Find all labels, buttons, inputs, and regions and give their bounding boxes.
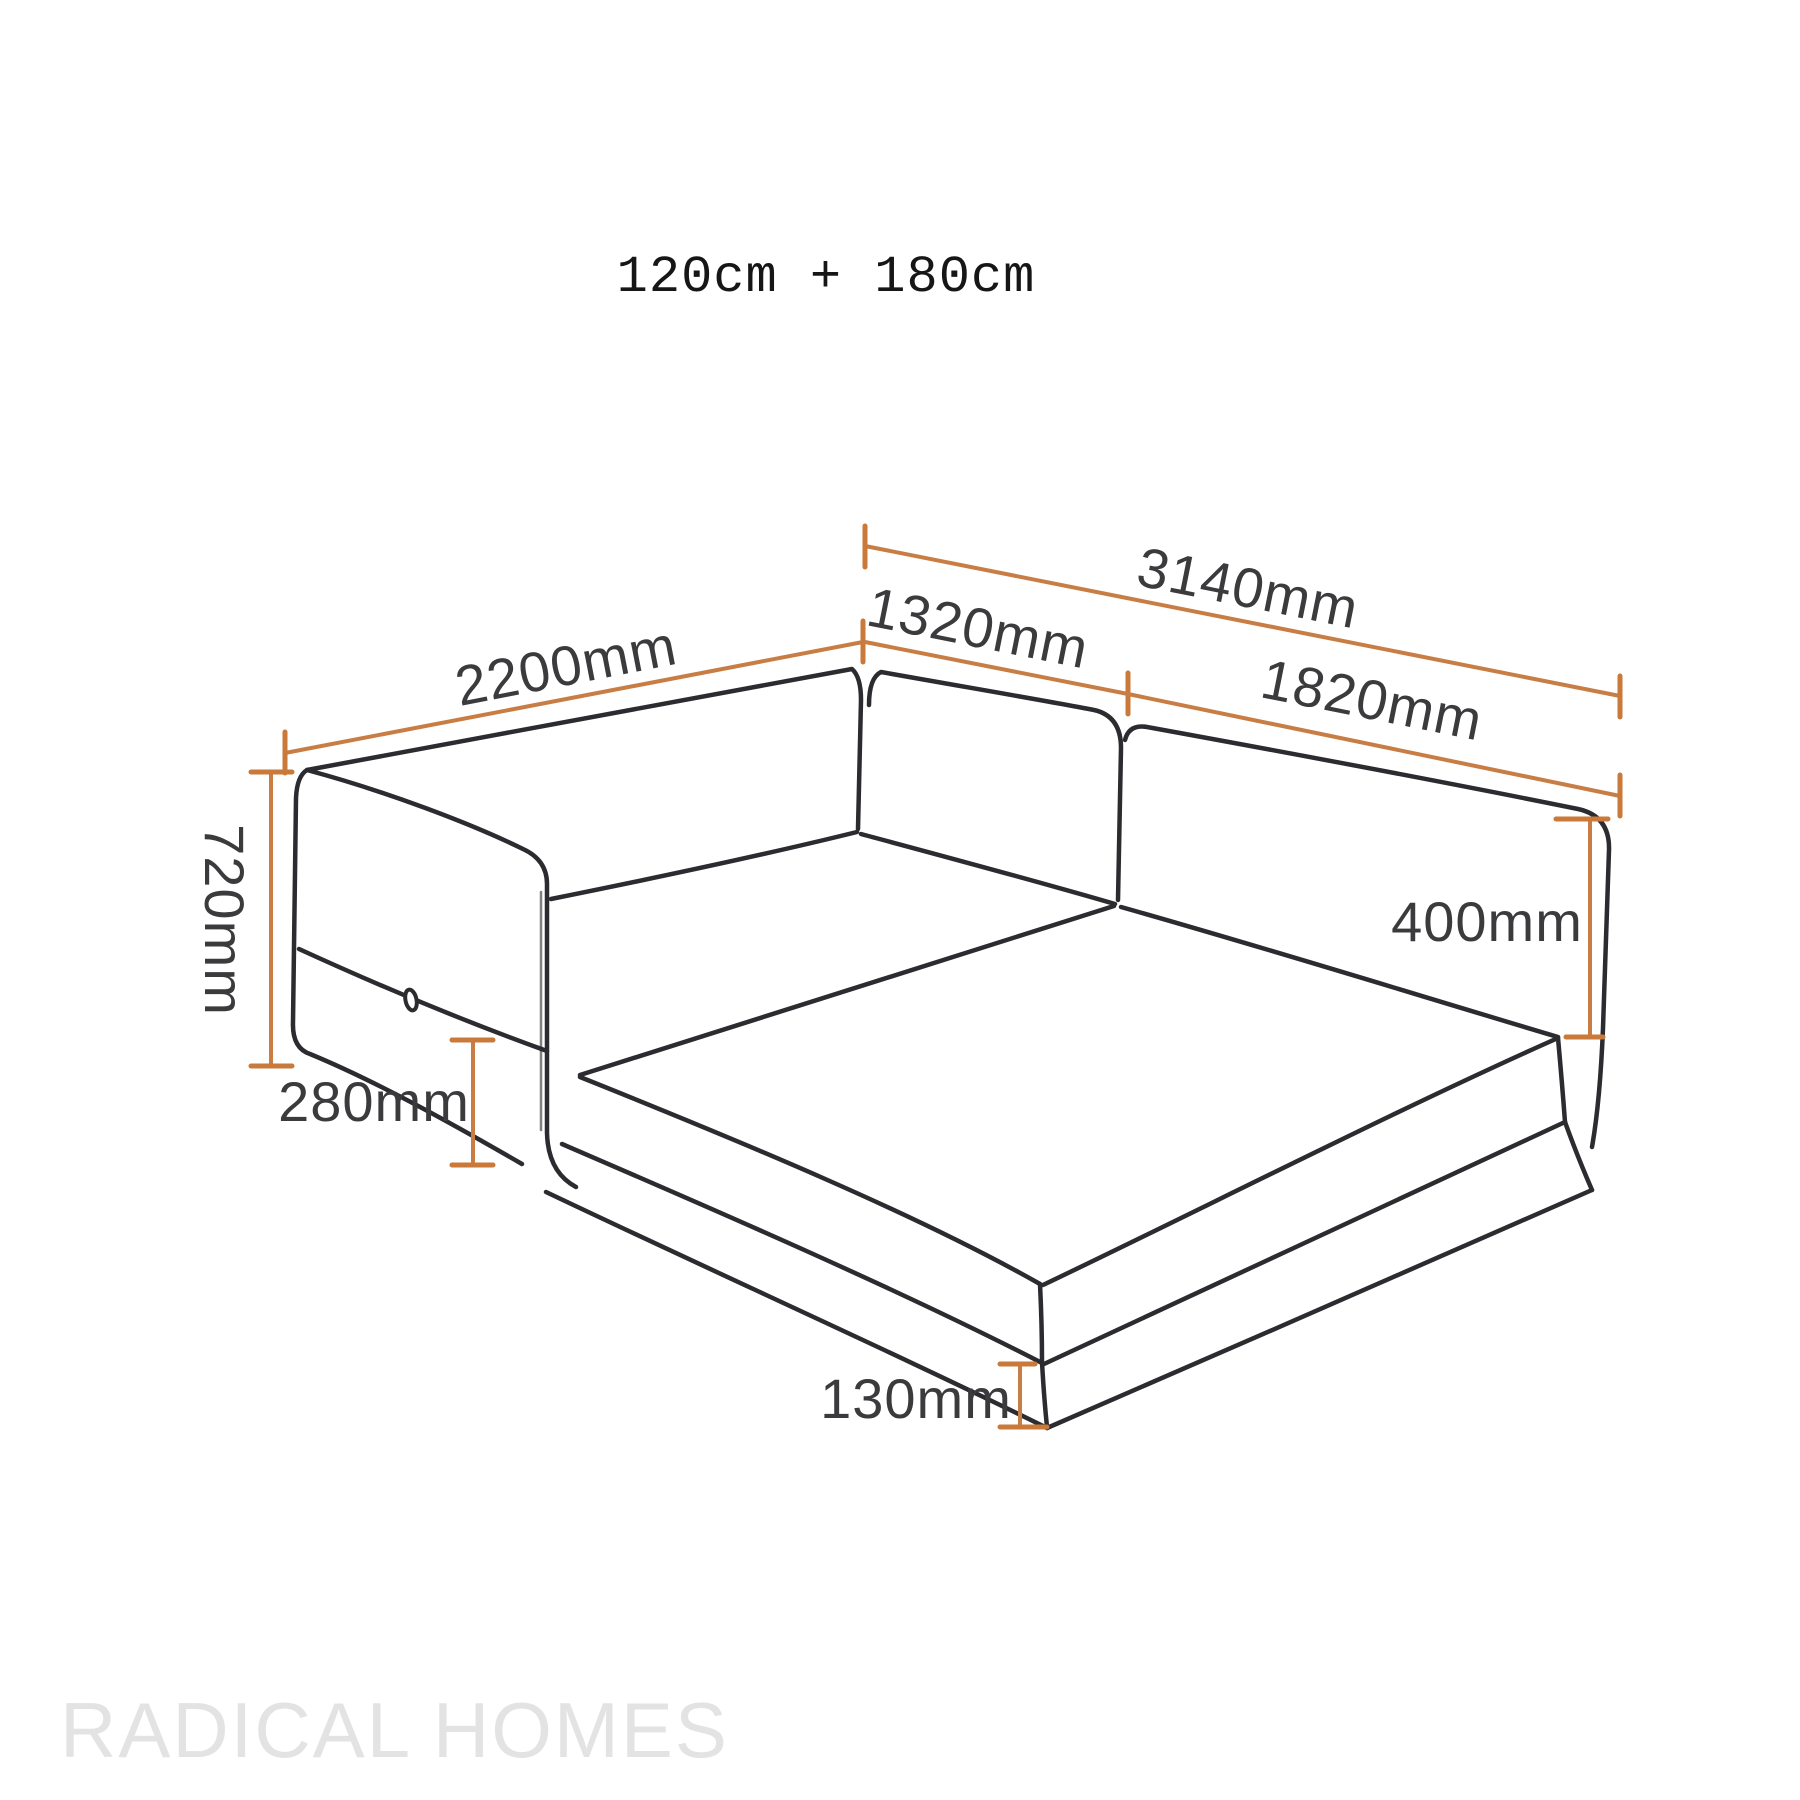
base-bottom-right-edge [1047, 1190, 1592, 1428]
seat-mattress-seam [580, 906, 1114, 1075]
dimension-720mm-label: 720mm [193, 824, 256, 1016]
sofa-drawing [293, 669, 1609, 1428]
dimension-2200mm-label: 2200mm [450, 613, 682, 718]
mattress-right-corner-edge [1558, 1038, 1565, 1122]
sofa-dimension-diagram: 120cm + 180cm [0, 0, 1800, 1800]
dimension-130mm-label: 130mm [820, 1367, 1012, 1430]
dimension-400mm: 400mm [1391, 819, 1608, 1037]
tufting-button [403, 989, 418, 1012]
watermark: RADICAL HOMES [60, 1686, 729, 1774]
dimension-280mm-label: 280mm [278, 1070, 470, 1133]
base-right-edge [1565, 1122, 1592, 1190]
back-left-wall-bottom-edge [551, 832, 857, 899]
front-corner-edges [1040, 1284, 1047, 1427]
backrest-panel-1-edge [869, 672, 1121, 900]
dimension-720mm: 720mm [193, 772, 292, 1066]
page-title: 120cm + 180cm [617, 248, 1036, 307]
mattress-bottom-left-edge [562, 1144, 1042, 1363]
armrest-seam [299, 949, 547, 1051]
dimension-2200mm: 2200mm [285, 613, 863, 773]
dimension-280mm: 280mm [278, 1040, 493, 1165]
diagram-page: 120cm + 180cm [0, 0, 1800, 1800]
dimension-3140mm-label: 3140mm [1132, 535, 1364, 641]
dimension-130mm: 130mm [820, 1364, 1047, 1430]
dimension-400mm-label: 400mm [1391, 890, 1583, 953]
backrest-panel-1-bottom-edge [861, 834, 1115, 904]
dimension-1820mm: 1820mm [1128, 647, 1620, 816]
